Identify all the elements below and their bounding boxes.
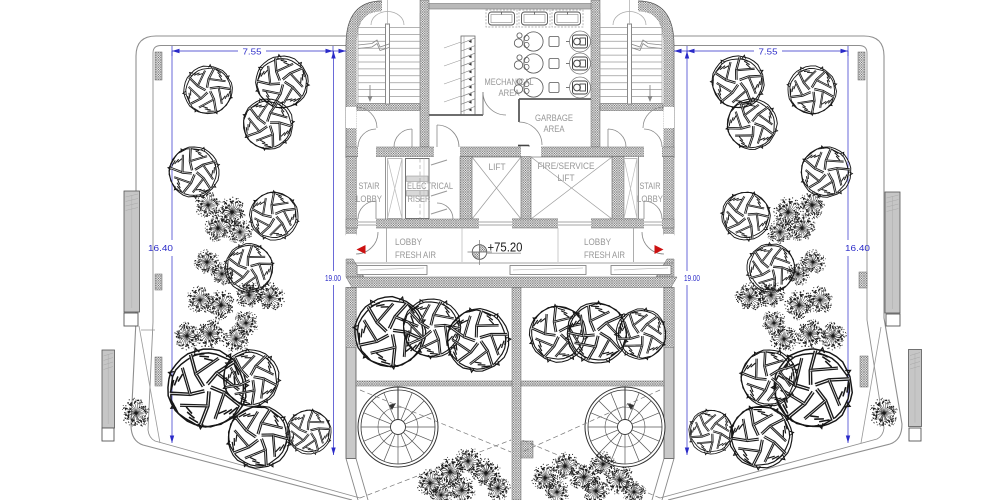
svg-text:LOBBY: LOBBY xyxy=(395,237,422,247)
svg-text:FRESH AIR: FRESH AIR xyxy=(395,250,436,260)
svg-text:STAIR: STAIR xyxy=(640,181,661,191)
svg-text:ELECTRICAL: ELECTRICAL xyxy=(407,181,453,191)
svg-text:AREA: AREA xyxy=(544,124,565,134)
svg-text:AREA: AREA xyxy=(499,88,520,98)
svg-text:7.55: 7.55 xyxy=(243,48,263,57)
svg-text:LOBBY: LOBBY xyxy=(584,237,611,247)
svg-text:FRESH AIR: FRESH AIR xyxy=(584,250,625,260)
svg-text:GARBAGE: GARBAGE xyxy=(535,113,573,123)
svg-text:RISER: RISER xyxy=(408,194,431,204)
svg-text:16.40: 16.40 xyxy=(148,244,174,253)
svg-text:LOBBY: LOBBY xyxy=(637,194,663,204)
svg-text:19.00: 19.00 xyxy=(325,274,341,283)
svg-text:LOBBY: LOBBY xyxy=(356,194,382,204)
svg-text:LIFT: LIFT xyxy=(489,162,507,172)
svg-text:MECHANICAL: MECHANICAL xyxy=(485,77,534,87)
svg-text:19.00: 19.00 xyxy=(684,274,700,283)
svg-text:LIFT: LIFT xyxy=(558,173,576,183)
svg-text:STAIR: STAIR xyxy=(359,181,380,191)
svg-text:7.55: 7.55 xyxy=(759,48,779,57)
svg-text:FIRE/SERVICE: FIRE/SERVICE xyxy=(538,161,595,171)
svg-text:+75.20: +75.20 xyxy=(488,241,523,255)
svg-text:16.40: 16.40 xyxy=(845,244,871,253)
